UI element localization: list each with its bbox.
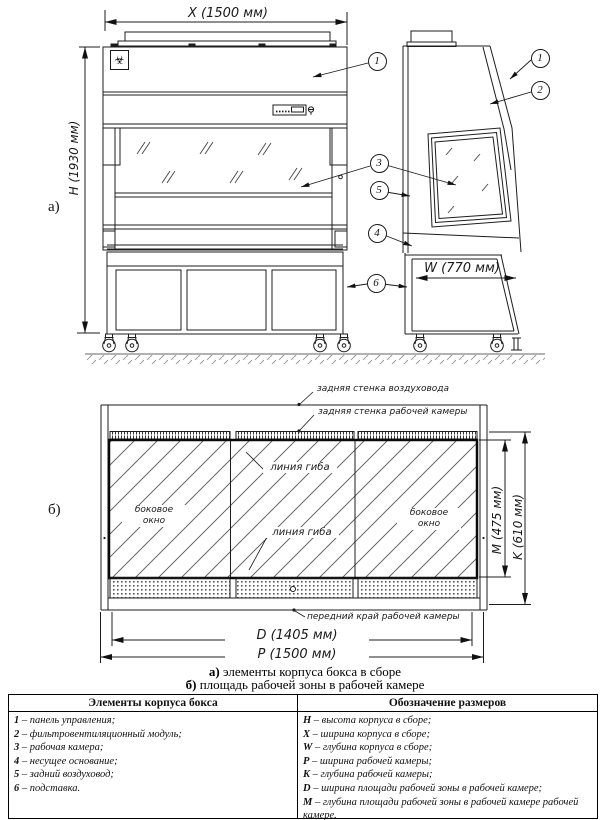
caption-b-prefix: б) <box>186 677 197 692</box>
element-num: 2 <box>14 729 19 740</box>
legend-size-item: D – ширина площади рабочей зоны в рабоче… <box>303 782 593 796</box>
dimension-d-label: D (1405 мм) <box>225 628 369 643</box>
callout-1-front: 1 <box>368 52 387 71</box>
size-key: D <box>303 783 311 794</box>
element-desc: – задний воздуховод; <box>22 769 114 780</box>
size-desc: – глубина корпуса в сборе; <box>315 742 432 753</box>
size-desc: – высота корпуса в сборе; <box>314 715 431 726</box>
element-desc: – панель управления; <box>22 715 115 726</box>
front-edge-label: передний край рабочей камеры <box>307 612 460 622</box>
size-desc: – ширина рабочей камеры; <box>312 756 432 767</box>
legend-size-item: W – глубина корпуса в сборе; <box>303 741 593 755</box>
legend-sizes-list: H – высота корпуса в сборе; X – ширина к… <box>298 712 597 820</box>
dimension-x-label: X (1500 мм) <box>158 6 298 21</box>
legend-sizes-column: Обозначение размеров H – высота корпуса … <box>298 695 597 818</box>
legend-size-item: P – ширина рабочей камеры; <box>303 755 593 769</box>
dimension-k-label: K (610 мм) <box>511 492 525 562</box>
size-desc: – ширина площади рабочей зоны в рабочей … <box>313 783 542 794</box>
element-desc: – рабочая камера; <box>22 742 104 753</box>
size-desc: – глубина площади рабочей зоны в рабочей… <box>303 797 578 820</box>
control-panel <box>273 105 314 115</box>
side-view-drawing <box>403 31 522 352</box>
caption-b-text: площадь рабочей зоны в рабочей камере <box>196 677 424 692</box>
size-key: K <box>303 769 310 780</box>
callout-3: 3 <box>370 154 389 173</box>
legend-table: Элементы корпуса бокса 1 – панель управл… <box>8 694 598 819</box>
element-num: 6 <box>14 783 19 794</box>
legend-size-item: K – глубина рабочей камеры; <box>303 768 593 782</box>
biohazard-icon: ☣ <box>110 50 129 70</box>
side-window-left-label: боковое окно <box>122 505 186 527</box>
callout-5: 5 <box>370 181 389 200</box>
callout-1-side: 1 <box>531 49 550 68</box>
fold-line-bottom-label: линия гиба <box>265 527 339 538</box>
dimension-p-label: P (1500 мм) <box>225 647 369 662</box>
side-window-left-line1: боковое <box>124 505 184 516</box>
legend-size-item: X – ширина корпуса в сборе; <box>303 728 593 742</box>
side-window-left-line2: окно <box>124 516 184 527</box>
element-num: 3 <box>14 742 19 753</box>
element-desc: – фильтровентиляционный модуль; <box>22 729 182 740</box>
legend-size-item: H – высота корпуса в сборе; <box>303 714 593 728</box>
side-window-right-line1: боковое <box>399 508 459 519</box>
legend-element-item: 6 – подставка. <box>14 782 293 796</box>
callout-6: 6 <box>367 274 386 293</box>
size-key: W <box>303 742 312 753</box>
callout-2: 2 <box>531 81 550 100</box>
legend-element-item: 5 – задний воздуховод; <box>14 768 293 782</box>
element-num: 4 <box>14 756 19 767</box>
chamber-back-wall-label: задняя стенка рабочей камеры <box>318 407 467 417</box>
view-a-label: а) <box>48 199 60 216</box>
callout-leaders <box>301 60 531 287</box>
element-desc: – несущее основание; <box>22 756 118 767</box>
size-desc: – ширина корпуса в сборе; <box>313 729 430 740</box>
size-key: P <box>303 756 309 767</box>
dimension-h-label: H (1930 мм) <box>67 120 81 196</box>
side-window-right-line2: окно <box>399 519 459 530</box>
element-num: 1 <box>14 715 19 726</box>
legend-sizes-header: Обозначение размеров <box>298 695 597 712</box>
legend-element-item: 4 – несущее основание; <box>14 755 293 769</box>
view-b-label: б) <box>48 502 61 519</box>
legend-elements-list: 1 – панель управления; 2 – фильтровентил… <box>9 712 297 796</box>
duct-back-wall-label: задняя стенка воздуховода <box>317 384 449 394</box>
dimension-lines-a <box>77 10 516 333</box>
front-view-drawing <box>103 32 351 352</box>
size-desc: – глубина рабочей камеры; <box>313 769 433 780</box>
size-key: H <box>303 715 311 726</box>
size-key: X <box>303 729 310 740</box>
element-num: 5 <box>14 769 19 780</box>
fold-line-top-label: линия гиба <box>263 462 337 473</box>
legend-elements-column: Элементы корпуса бокса 1 – панель управл… <box>9 695 298 818</box>
side-window-right-label: боковое окно <box>397 508 461 530</box>
ground-line <box>85 354 545 364</box>
dimension-m-label: M (475 мм) <box>490 485 504 555</box>
legend-element-item: 1 – панель управления; <box>14 714 293 728</box>
size-key: M <box>303 797 312 808</box>
callout-4: 4 <box>368 224 387 243</box>
technical-drawing-page: X (1500 мм) H (1930 мм) W (770 мм) M (47… <box>0 0 605 820</box>
legend-element-item: 2 – фильтровентиляционный модуль; <box>14 728 293 742</box>
element-desc: – подставка. <box>22 783 80 794</box>
dimension-w-label: W (770 мм) <box>412 261 512 276</box>
legend-element-item: 3 – рабочая камера; <box>14 741 293 755</box>
legend-elements-header: Элементы корпуса бокса <box>9 695 297 712</box>
caption-view-b: б) площадь рабочей зоны в рабочей камере <box>60 677 550 693</box>
legend-size-item: M – глубина площади рабочей зоны в рабоч… <box>303 796 593 820</box>
